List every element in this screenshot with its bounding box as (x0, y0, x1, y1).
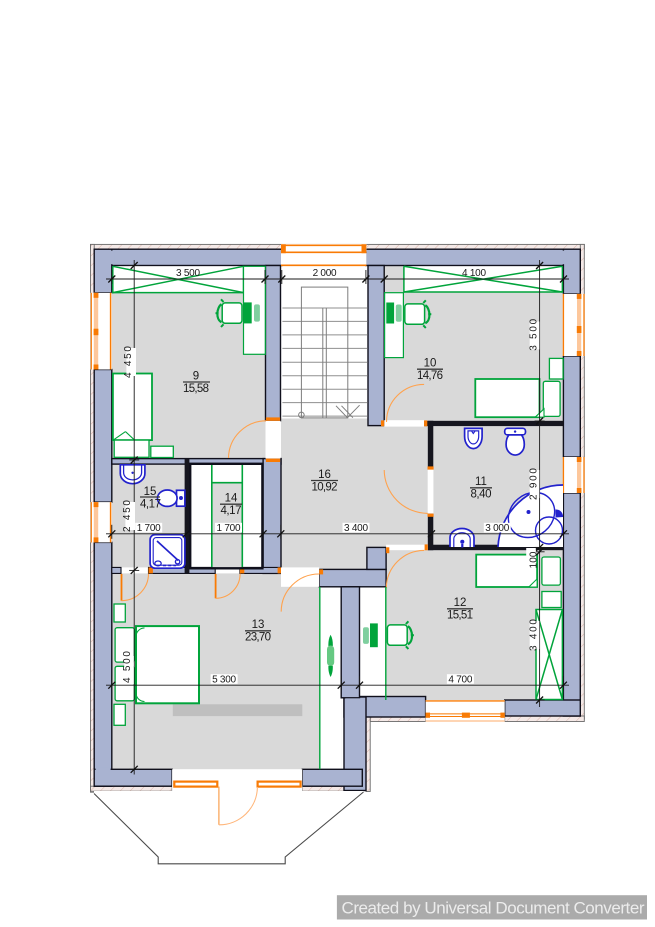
svg-text:23,70: 23,70 (245, 632, 271, 644)
svg-text:14: 14 (225, 493, 238, 505)
svg-text:1 700: 1 700 (137, 523, 161, 534)
svg-text:3 400: 3 400 (529, 619, 540, 651)
svg-text:4 700: 4 700 (448, 674, 472, 685)
svg-text:Created by Universal Document: Created by Universal Document Converter (342, 899, 645, 918)
svg-text:10: 10 (424, 357, 437, 369)
svg-text:14,76: 14,76 (417, 370, 443, 382)
svg-text:3 500: 3 500 (529, 318, 540, 350)
svg-text:15,58: 15,58 (183, 383, 209, 395)
svg-text:2 450: 2 450 (122, 500, 133, 532)
svg-text:4 450: 4 450 (123, 346, 134, 378)
svg-text:11: 11 (475, 476, 487, 488)
svg-text:2 000: 2 000 (313, 268, 337, 279)
svg-text:10,92: 10,92 (312, 481, 338, 493)
svg-text:5 300: 5 300 (212, 674, 236, 685)
svg-text:100: 100 (529, 551, 540, 568)
svg-text:4 500: 4 500 (122, 651, 133, 683)
svg-text:8,40: 8,40 (471, 489, 492, 501)
svg-text:2 900: 2 900 (529, 468, 540, 500)
svg-text:16: 16 (318, 469, 331, 481)
svg-text:15,51: 15,51 (447, 610, 473, 622)
svg-text:12: 12 (454, 597, 467, 609)
svg-text:4 100: 4 100 (462, 268, 486, 279)
svg-text:9: 9 (193, 370, 199, 382)
svg-text:3 400: 3 400 (344, 523, 368, 534)
svg-text:3 000: 3 000 (485, 523, 509, 534)
svg-text:3 500: 3 500 (176, 268, 200, 279)
svg-text:13: 13 (252, 619, 265, 631)
svg-text:15: 15 (144, 486, 157, 498)
svg-text:4,17: 4,17 (221, 505, 242, 517)
svg-text:4,17: 4,17 (140, 498, 161, 510)
svg-text:1 700: 1 700 (217, 523, 241, 534)
